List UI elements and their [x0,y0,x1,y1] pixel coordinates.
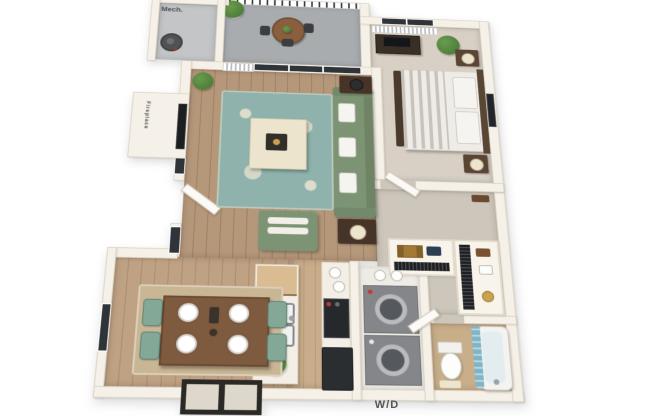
washer-dryer-label: W/D [362,399,412,411]
dryer [364,335,422,386]
bed-blanket-stripes [401,69,450,149]
closet-item-gold [482,291,495,303]
laundry-shelf-item [374,270,386,281]
table-centerpiece [209,307,220,323]
patio-chair [260,26,270,36]
sofa-pillow [338,137,356,157]
laundry-shelf-item [391,270,404,281]
bathtub-basin [481,331,506,383]
nightstand-lamp [469,158,484,171]
exterior-window [219,380,262,416]
refrigerator [322,347,354,391]
sofa-pillow [338,103,356,123]
vertical-blinds [223,62,254,72]
tub-faucet [493,379,499,385]
hanging-clothes [394,262,450,272]
dryer-knob [369,340,374,345]
stove-knob [335,302,340,307]
washer-door [379,298,403,320]
counter-dish [333,281,345,293]
closet-bag [426,246,441,256]
entry-side-window [168,226,181,253]
patio-chair [304,23,314,33]
closet-item-brown [475,248,490,257]
suitcase [397,245,423,258]
dining-chair [142,299,164,327]
bed-pillow [452,77,478,109]
tv-bedroom [384,37,411,47]
door-mullion [288,65,290,72]
table-lamp-dark [350,79,364,91]
patio-chair [282,39,294,47]
washer-knob [368,289,373,293]
bath-mat [439,380,461,388]
sofa-armrest [334,207,376,218]
exterior-window [180,379,224,415]
table-lamp [350,225,367,240]
closet-item-white [479,265,493,275]
stove-knob [326,302,331,307]
patio-table-centerpiece [283,26,291,33]
floorplan-render: { "labels": { "mech_room": "Mech.", "fir… [0,0,652,416]
tray-decor [273,139,280,145]
chair-throw [268,217,309,225]
kitchen-faucet [289,316,295,322]
dining-chair [267,333,287,361]
dryer-door [381,349,405,372]
balcony-right-wall [359,3,371,68]
bed-pillow [455,111,482,144]
dining-chair [267,301,287,328]
floor-plan: Mech. Fireplace [93,0,525,402]
nightstand-lamp [461,53,475,64]
dining-chair [139,331,161,359]
chair-throw [267,227,308,235]
hall-bench [471,195,489,203]
sofa-pillow [339,172,357,193]
counter-dish [329,267,341,278]
window-mullion [406,19,408,26]
door-mullion [322,66,324,73]
